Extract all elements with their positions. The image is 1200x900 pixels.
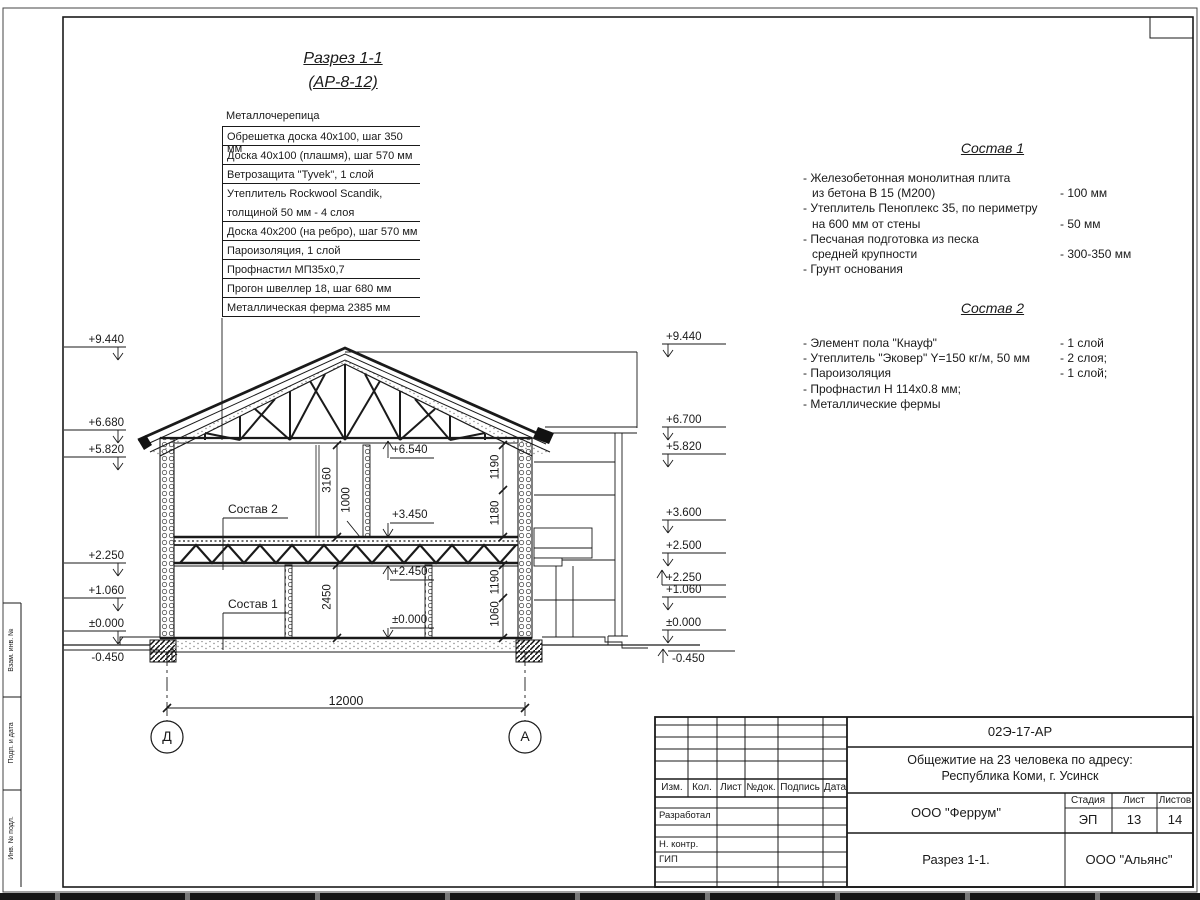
titleblock-project-line1: Общежитие на 23 человека по адресу: [907, 753, 1132, 767]
titleblock-doc-number: 02Э-17-АР [988, 725, 1052, 740]
spec-line: - Утеплитель Пеноплекс 35, по периметру [803, 201, 1038, 215]
titleblock-sheets-label: Листов [1159, 795, 1192, 806]
spec-line: из бетона В 15 (М200) [812, 186, 935, 200]
sostav2-block: Состав 2 - Элемент пола "Кнауф"- 1 слой … [795, 300, 1190, 412]
sostav1-block: Состав 1 - Железобетонная монолитная пли… [795, 140, 1190, 277]
elevation-mark: +6.700 [666, 414, 724, 427]
titleblock-org-contractor: ООО "Альянс" [1086, 853, 1173, 868]
elevation-mark: +2.250 [66, 550, 124, 563]
roof-layer-row: Утеплитель Rockwool Scandik, [223, 184, 420, 203]
titleblock-role-developed: Разработал [659, 811, 711, 822]
dim-height: 1000 [341, 487, 354, 513]
dim-height: 1190 [490, 455, 503, 480]
titleblock-drawing-name: Разрез 1-1. [922, 853, 989, 868]
elevation-symbols-right [657, 344, 735, 663]
dim-height: 1180 [490, 501, 503, 526]
spec-line: - Металлические фермы [803, 397, 940, 411]
titleblock-header-list: Лист [720, 782, 742, 793]
dim-height: 3160 [322, 467, 335, 493]
elevation-mark: +2.250 [666, 572, 724, 585]
section-subtitle: (АР-8-12) [308, 74, 377, 92]
titleblock-header-ndok: №док. [746, 782, 775, 793]
spec-size: - 1 слой [1060, 336, 1104, 350]
dim-height: 1190 [490, 570, 503, 595]
roof-layers-list: Металлочерепица Обрешетка доска 40х100, … [222, 110, 420, 317]
elevation-mark: -0.450 [672, 653, 730, 666]
spec-size: - 100 мм [1060, 186, 1107, 200]
spec-line: на 600 мм от стены [812, 217, 920, 231]
callout-sostav1: Состав 1 [228, 598, 278, 611]
axis-bubble-left: Д [162, 729, 171, 745]
titleblock-sheet-value: 13 [1127, 813, 1141, 828]
spec-line: - Утеплитель "Эковер" Y=150 кг/м, 50 мм [803, 351, 1030, 365]
titleblock-header-data: Дата [824, 782, 846, 793]
frame-side-label: Инв. № подл. [8, 816, 16, 860]
titleblock-org-designer: ООО "Феррум" [911, 806, 1001, 821]
titleblock-header-podpis: Подпись [780, 782, 820, 793]
roof-layer-row: Металлическая ферма 2385 мм [223, 298, 420, 317]
spec-line: - Элемент пола "Кнауф" [803, 336, 937, 350]
drawing-sheet: Разрез 1-1 (АР-8-12) Металлочерепица Обр… [0, 0, 1200, 900]
elevation-mark: +9.440 [666, 331, 724, 344]
sostav1-title: Состав 1 [795, 140, 1190, 156]
elevation-mark: ±0.000 [666, 617, 724, 630]
ground-foundation [63, 637, 700, 662]
callout-sostav2: Состав 2 [228, 503, 278, 516]
roof-layer-row: Прогон швеллер 18, шаг 680 мм [223, 279, 420, 298]
elevation-mark: +2.450 [392, 566, 450, 579]
spec-size: - 300-350 мм [1060, 247, 1131, 261]
elevation-mark: +5.820 [66, 444, 124, 457]
dim-height: 1060 [490, 601, 503, 627]
roof-layer-row: Профнастил МП35х0,7 [223, 260, 420, 279]
titleblock-stage-value: ЭП [1079, 813, 1098, 828]
titleblock-sheets-value: 14 [1168, 813, 1182, 828]
titleblock-role-gip: ГИП [659, 855, 678, 866]
elevation-mark: +1.060 [66, 585, 124, 598]
elevation-mark: +6.540 [392, 444, 450, 457]
scan-edge-band [0, 893, 1200, 900]
spec-line: - Песчаная подготовка из песка [803, 232, 979, 246]
elevation-mark: +2.500 [666, 540, 724, 553]
titleblock-role-ncontr: Н. контр. [659, 840, 698, 851]
elevation-mark: +6.680 [66, 417, 124, 430]
spec-line: - Грунт основания [803, 262, 903, 276]
spec-size: - 2 слоя; [1060, 351, 1107, 365]
titleblock-header-kol: Кол. [692, 782, 712, 793]
roof-layer-row: Доска 40х200 (на ребро), шаг 570 мм [223, 222, 420, 241]
roof-layer-row: Доска 40х100 (плашмя), шаг 570 мм [223, 146, 420, 165]
spec-line: - Железобетонная монолитная плита [803, 171, 1010, 185]
dim-height: 2450 [322, 584, 335, 610]
elevation-mark: +1.060 [666, 584, 724, 597]
sostav2-title: Состав 2 [795, 300, 1190, 316]
roof-layer-top: Металлочерепица [222, 110, 420, 127]
elevation-mark: +5.820 [666, 441, 724, 454]
spec-line: средней крупности [812, 247, 917, 261]
dim-span: 12000 [329, 694, 364, 708]
frame-side-label: Подп. и дата [8, 722, 16, 763]
spec-size: - 50 мм [1060, 217, 1101, 231]
titleblock-sheet-label: Лист [1123, 795, 1145, 806]
axis-bubble-right: А [520, 729, 529, 745]
roof-layer-row: Пароизоляция, 1 слой [223, 241, 420, 260]
titleblock-stage-label: Стадия [1071, 795, 1105, 806]
elevation-mark: -0.450 [66, 652, 124, 665]
roof [138, 348, 554, 456]
roof-layer-row: Ветрозащита "Tyvek", 1 слой [223, 165, 420, 184]
section-title: Разрез 1-1 [303, 50, 382, 68]
elevation-mark: ±0.000 [392, 614, 450, 627]
spec-size: - 1 слой; [1060, 366, 1107, 380]
roof-layer-row: толщиной 50 мм - 4 слоя [223, 203, 420, 222]
elevation-mark: +3.600 [666, 507, 724, 520]
roof-layer-row: Обрешетка доска 40х100, шаг 350 мм [223, 127, 420, 146]
spec-line: - Профнастил Н 114х0.8 мм; [803, 382, 961, 396]
elevation-mark: +3.450 [392, 509, 450, 522]
spec-line: - Пароизоляция [803, 366, 891, 380]
elevation-mark: +9.440 [66, 334, 124, 347]
titleblock-project-line2: Республика Коми, г. Усинск [942, 769, 1099, 783]
titleblock-header-izm: Изм. [661, 782, 682, 793]
elevation-mark: ±0.000 [66, 618, 124, 631]
frame-side-label: Взам. инв. № [8, 628, 16, 671]
